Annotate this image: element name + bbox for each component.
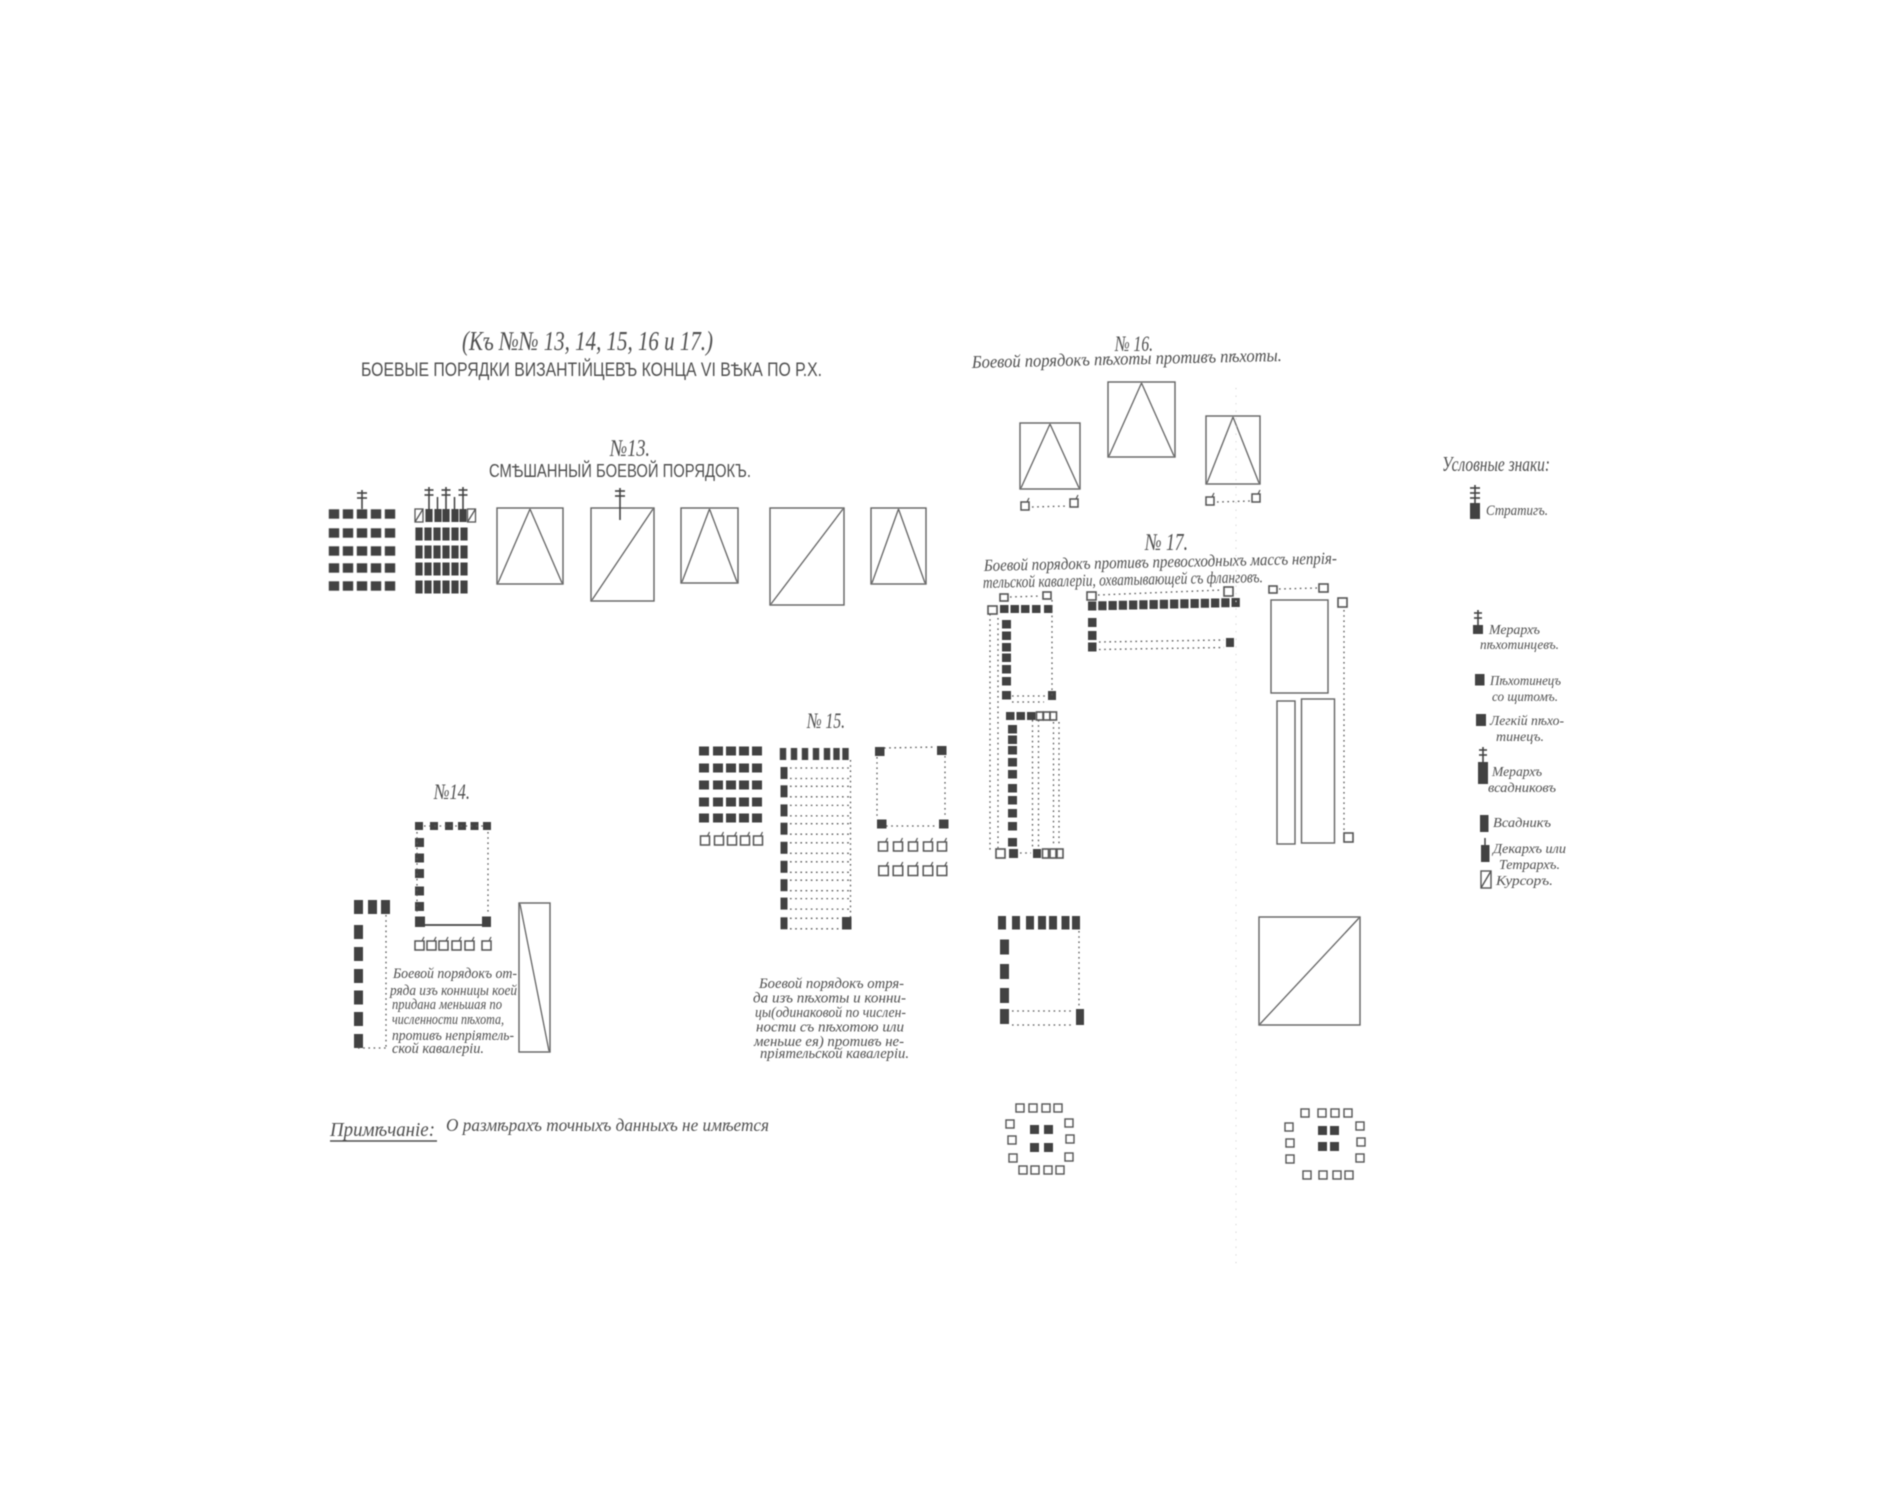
svg-text:Мерархъ: Мерархъ xyxy=(1491,765,1542,780)
svg-text:Курсоръ.: Курсоръ. xyxy=(1495,874,1553,889)
svg-text:№13.: №13. xyxy=(609,436,650,462)
svg-text:О размѣрахъ точныхъ данныхъ не: О размѣрахъ точныхъ данныхъ не имѣется xyxy=(446,1115,769,1135)
svg-text:со щитомъ.: со щитомъ. xyxy=(1492,690,1558,705)
svg-text:Всадникъ: Всадникъ xyxy=(1493,816,1551,831)
svg-text:численности пѣхота,: численности пѣхота, xyxy=(392,1012,504,1028)
svg-text:СМѢШАННЫЙ БОЕВОЙ ПОРЯДОКЪ.: СМѢШАННЫЙ БОЕВОЙ ПОРЯДОКЪ. xyxy=(489,460,751,481)
svg-text:Тетрархъ.: Тетрархъ. xyxy=(1499,858,1560,873)
svg-text:Легкій пѣхо-: Легкій пѣхо- xyxy=(1489,714,1564,729)
svg-text:тинецъ.: тинецъ. xyxy=(1496,730,1544,745)
svg-text:пріятельской кавалеріи.: пріятельской кавалеріи. xyxy=(760,1046,909,1062)
svg-text:Боевой порядокъ от-: Боевой порядокъ от- xyxy=(392,966,517,982)
svg-text:Стратигъ.: Стратигъ. xyxy=(1486,503,1548,519)
svg-text:Условные знаки:: Условные знаки: xyxy=(1442,452,1550,476)
svg-text:№14.: №14. xyxy=(433,779,470,804)
svg-text:БОЕВЫЕ ПОРЯДКИ ВИЗАНТІЙЦЕВЪ КО: БОЕВЫЕ ПОРЯДКИ ВИЗАНТІЙЦЕВЪ КОНЦА VI ВѢК… xyxy=(361,359,822,381)
svg-text:№ 15.: № 15. xyxy=(806,708,845,733)
svg-text:всадниковъ: всадниковъ xyxy=(1488,781,1556,796)
svg-text:(Къ №№ 13, 14, 15, 16 и 17.): (Къ №№ 13, 14, 15, 16 и 17.) xyxy=(462,326,713,356)
svg-text:Примѣчаніе:: Примѣчаніе: xyxy=(329,1119,435,1141)
svg-text:придана меньшая по: придана меньшая по xyxy=(392,997,502,1013)
svg-text:Мерархъ: Мерархъ xyxy=(1488,623,1540,638)
svg-text:ской кавалеріи.: ской кавалеріи. xyxy=(392,1041,484,1057)
svg-text:Декархъ или: Декархъ или xyxy=(1491,842,1566,857)
svg-text:пѣхотинцевъ.: пѣхотинцевъ. xyxy=(1480,638,1559,653)
svg-text:Пѣхотинецъ: Пѣхотинецъ xyxy=(1489,674,1561,689)
